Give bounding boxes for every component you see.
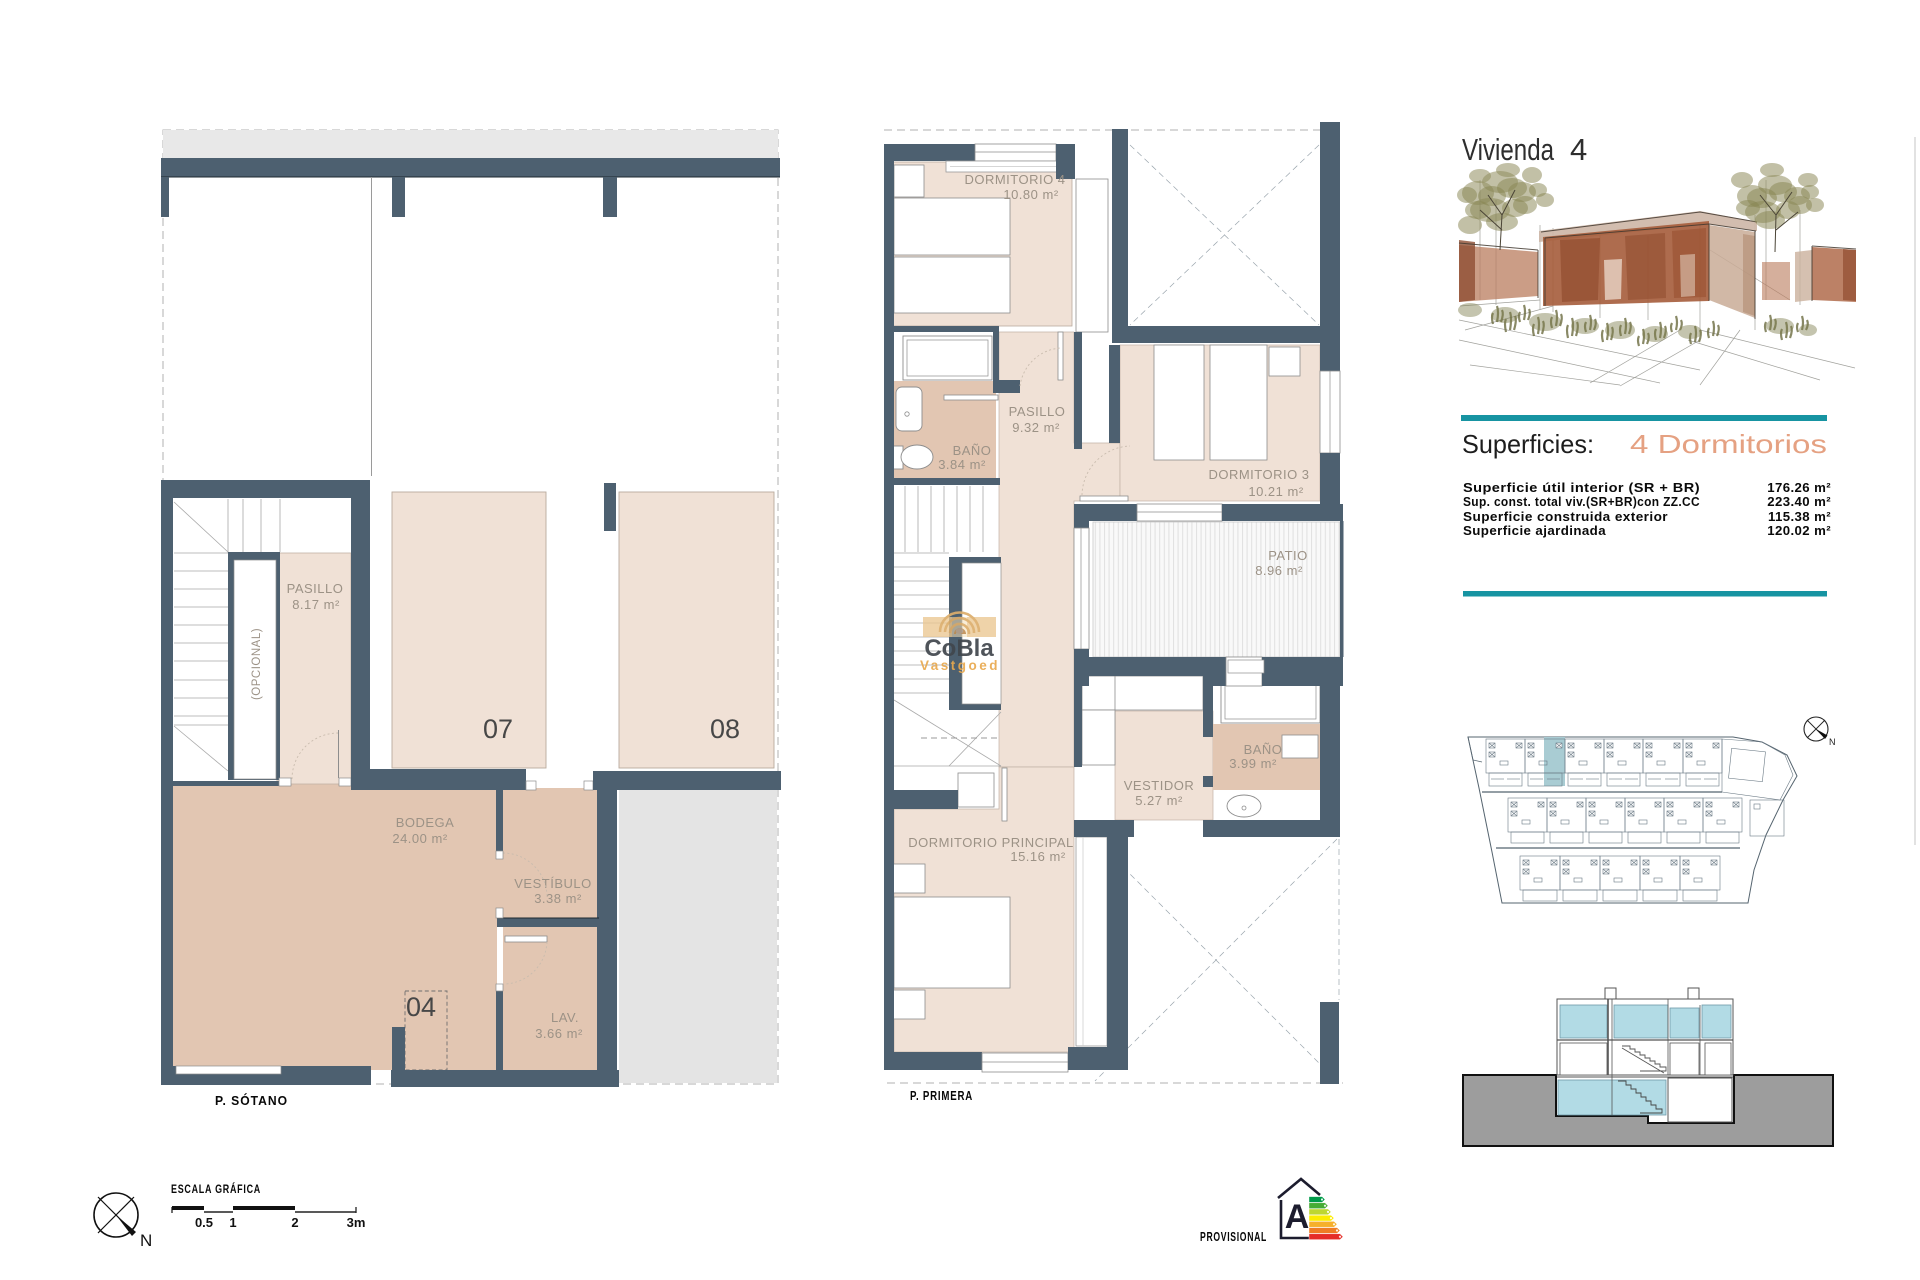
svg-text:5.27 m²: 5.27 m²	[1135, 793, 1183, 808]
svg-text:(OPCIONAL): (OPCIONAL)	[251, 628, 263, 700]
svg-text:Vivienda: Vivienda	[1462, 132, 1555, 167]
svg-text:1: 1	[229, 1215, 236, 1230]
svg-text:0.5: 0.5	[195, 1215, 213, 1230]
svg-text:Vastgoed: Vastgoed	[920, 658, 1000, 673]
svg-text:24.00 m²: 24.00 m²	[392, 831, 447, 846]
svg-text:LAV.: LAV.	[551, 1010, 579, 1025]
svg-text:BODEGA: BODEGA	[396, 815, 455, 830]
svg-text:10.21 m²: 10.21 m²	[1248, 484, 1303, 499]
svg-text:115.38 m²: 115.38 m²	[1768, 509, 1831, 524]
svg-text:223.40 m²: 223.40 m²	[1767, 494, 1831, 509]
svg-text:15.16 m²: 15.16 m²	[1010, 849, 1065, 864]
svg-text:Superficie construida exterior: Superficie construida exterior	[1463, 509, 1668, 524]
svg-text:10.80 m²: 10.80 m²	[1003, 187, 1058, 202]
svg-text:Superficie útil interior (SR +: Superficie útil interior (SR + BR)	[1463, 480, 1700, 495]
svg-text:08: 08	[710, 714, 740, 744]
svg-text:3m: 3m	[347, 1215, 366, 1230]
svg-text:Sup. const. total viv.(SR+BR)c: Sup. const. total viv.(SR+BR)con ZZ.CC	[1463, 494, 1700, 509]
svg-text:BAÑO: BAÑO	[1244, 742, 1283, 757]
svg-text:PATIO: PATIO	[1268, 548, 1308, 563]
svg-text:4: 4	[1570, 132, 1587, 167]
svg-text:8.17 m²: 8.17 m²	[292, 597, 340, 612]
svg-text:3.99 m²: 3.99 m²	[1229, 756, 1277, 771]
svg-text:N: N	[140, 1231, 152, 1250]
svg-text:Superficies:: Superficies:	[1462, 429, 1594, 459]
svg-text:8.96 m²: 8.96 m²	[1255, 563, 1303, 578]
svg-text:176.26 m²: 176.26 m²	[1767, 480, 1831, 495]
svg-text:4 Dormitorios: 4 Dormitorios	[1630, 429, 1827, 459]
svg-text:3.38 m²: 3.38 m²	[534, 891, 582, 906]
svg-text:N: N	[1829, 737, 1836, 747]
svg-text:VESTÍBULO: VESTÍBULO	[514, 876, 591, 891]
svg-text:Superficie ajardinada: Superficie ajardinada	[1463, 523, 1606, 538]
svg-text:BAÑO: BAÑO	[953, 443, 992, 458]
svg-text:P. PRIMERA: P. PRIMERA	[910, 1089, 973, 1103]
svg-text:DORMITORIO 4: DORMITORIO 4	[964, 172, 1065, 187]
svg-text:PASILLO: PASILLO	[287, 581, 344, 596]
svg-text:DORMITORIO 3: DORMITORIO 3	[1208, 467, 1309, 482]
svg-text:120.02 m²: 120.02 m²	[1767, 523, 1831, 538]
svg-text:PROVISIONAL: PROVISIONAL	[1200, 1230, 1267, 1244]
svg-text:04: 04	[406, 992, 436, 1022]
svg-text:A: A	[1285, 1198, 1310, 1236]
svg-text:3.84 m²: 3.84 m²	[938, 457, 986, 472]
svg-text:P. SÓTANO: P. SÓTANO	[215, 1093, 288, 1108]
svg-text:9.32 m²: 9.32 m²	[1012, 420, 1060, 435]
svg-text:PASILLO: PASILLO	[1009, 404, 1066, 419]
svg-text:3.66 m²: 3.66 m²	[535, 1026, 583, 1041]
svg-text:07: 07	[483, 714, 513, 744]
svg-text:ESCALA GRÁFICA: ESCALA GRÁFICA	[171, 1181, 261, 1196]
svg-text:VESTIDOR: VESTIDOR	[1124, 778, 1194, 793]
svg-text:2: 2	[291, 1215, 298, 1230]
svg-text:DORMITORIO PRINCIPAL: DORMITORIO PRINCIPAL	[908, 835, 1074, 850]
